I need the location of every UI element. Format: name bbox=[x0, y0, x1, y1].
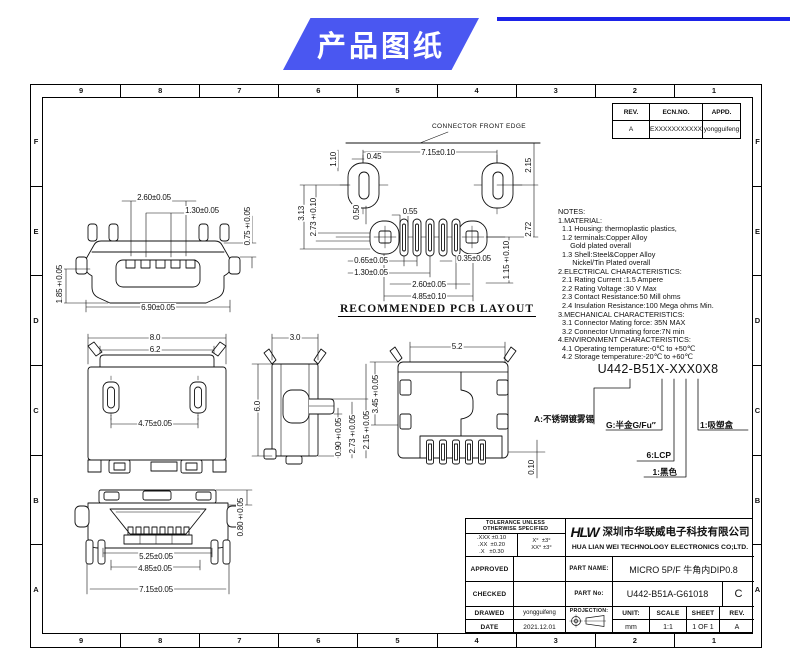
dim-label: 4.85±0.05 bbox=[137, 564, 173, 573]
dim-label: 1.30±0.05 bbox=[184, 206, 220, 215]
third-angle-projection-icon bbox=[569, 614, 609, 628]
tolerance-angular: X° ±3° XX° ±3° bbox=[518, 534, 566, 557]
dim-label: 0.10 bbox=[527, 459, 536, 476]
dim-label: 3.13 bbox=[297, 205, 306, 222]
dim-label: 4.85±0.10 bbox=[411, 292, 447, 301]
dim-label: 0.45 bbox=[366, 152, 383, 161]
company-name-cn: 深圳市华联威电子科技有限公司 bbox=[603, 524, 750, 539]
callout-shell-finish: A:不锈钢镀雾锡 bbox=[532, 413, 594, 425]
dim-label: 7.15±0.10 bbox=[420, 148, 456, 157]
dim-label: 2.15 bbox=[524, 157, 533, 174]
company-name-en: HUA LIAN WEI TECHNOLOGY ELECTRONICS CO;L… bbox=[572, 544, 748, 551]
unit-value: mm bbox=[613, 620, 650, 634]
dim-label: 2.73±0.10 bbox=[309, 197, 318, 237]
callout-color: 1:黑色 bbox=[644, 466, 677, 478]
dim-label: 0.55 bbox=[402, 207, 419, 216]
date-value: 2021.12.01 bbox=[514, 620, 566, 634]
dim-label: 3.45±0.05 bbox=[371, 374, 380, 414]
rev-value: A bbox=[720, 620, 754, 634]
dim-label: 2.73±0.05 bbox=[348, 414, 357, 454]
dim-label: 3.0 bbox=[289, 333, 302, 342]
front-view-linework bbox=[60, 201, 256, 312]
appd-header: APPD. bbox=[703, 104, 740, 121]
part-no-label: PART No: bbox=[566, 582, 613, 607]
dim-label: 6.2 bbox=[149, 345, 162, 354]
appd-value: yongguifeng bbox=[703, 121, 740, 138]
top-view-linework bbox=[88, 334, 226, 473]
dim-label: 6.0 bbox=[253, 400, 262, 413]
dim-label: 2.72 bbox=[524, 221, 533, 238]
dim-label: 0.75±0.05 bbox=[243, 206, 252, 246]
rev-value: A bbox=[613, 121, 650, 138]
checked-label: CHECKED bbox=[466, 582, 514, 607]
scale-label: SCALE bbox=[650, 607, 687, 620]
projection-cell: PROJECTION: bbox=[566, 607, 613, 634]
tolerance-linear: .XXX ±0.10 .XX ±0.20 .X ±0.30 bbox=[466, 534, 518, 557]
sheet-value: 1 OF 1 bbox=[687, 620, 720, 634]
dim-label: 0.35±0.05 bbox=[456, 254, 492, 263]
ecn-value: EXXXXXXXXXXX bbox=[650, 121, 703, 138]
dim-label: 1.15±0.10 bbox=[502, 240, 511, 280]
title-block: TOLERANCE UNLESS OTHERWISE SPECIFIED .XX… bbox=[465, 518, 753, 633]
dim-label: 0.50 bbox=[352, 204, 361, 221]
dim-label: 2.60±0.05 bbox=[136, 193, 172, 202]
dim-label: 1.30±0.05 bbox=[353, 268, 389, 277]
sheet-label: SHEET bbox=[687, 607, 720, 620]
dim-label: 1.10 bbox=[329, 151, 338, 168]
revision-table: REV. ECN.NO. APPD. A EXXXXXXXXXXX yonggu… bbox=[612, 103, 741, 139]
revision-letter: C bbox=[723, 582, 754, 607]
dim-label: 2.60±0.05 bbox=[411, 280, 447, 289]
part-name-label: PART NAME: bbox=[566, 557, 613, 582]
part-no-value: U442-B51A-G61018 bbox=[613, 582, 723, 607]
ecn-header: ECN.NO. bbox=[650, 104, 703, 121]
callout-packing: 1:吸塑盒 bbox=[700, 419, 733, 431]
dim-label: 0.65±0.05 bbox=[353, 256, 389, 265]
scale-value: 1:1 bbox=[650, 620, 687, 634]
dim-label: 4.75±0.05 bbox=[137, 419, 173, 428]
dim-label: 0.90±0.05 bbox=[334, 417, 343, 457]
dim-label: 5.2 bbox=[451, 342, 464, 351]
dim-label: 0.80±0.05 bbox=[236, 497, 245, 537]
part-number-code: U442-B51X-XXX0X8 bbox=[593, 362, 723, 376]
date-label: DATE bbox=[466, 620, 514, 634]
rev-label: REV. bbox=[720, 607, 754, 620]
pcb-layout-caption: RECOMMENDED PCB LAYOUT bbox=[338, 303, 536, 317]
notes-block: NOTES: 1.MATERIAL: 1.1 Housing: thermopl… bbox=[558, 208, 714, 362]
dim-label: 5.25±0.05 bbox=[138, 552, 174, 561]
approved-value bbox=[514, 557, 566, 582]
company-block: HLW 深圳市华联威电子科技有限公司 HUA LIAN WEI TECHNOLO… bbox=[566, 519, 754, 557]
drawed-value: yongguifeng bbox=[514, 607, 566, 620]
connector-front-edge-label: CONNECTOR FRONT EDGE bbox=[432, 123, 526, 130]
tolerance-header: TOLERANCE UNLESS OTHERWISE SPECIFIED bbox=[466, 519, 566, 534]
callout-plating: G:半金G/Fu″ bbox=[606, 419, 656, 431]
callout-material: 6:LCP bbox=[637, 450, 671, 460]
checked-value bbox=[514, 582, 566, 607]
part-name-value: MICRO 5P/F 牛角内DIP0.8 bbox=[613, 557, 754, 582]
back-view-linework bbox=[370, 342, 545, 478]
approved-label: APPROVED bbox=[466, 557, 514, 582]
bottom-view-linework bbox=[75, 490, 252, 594]
dim-label: 1.85±0.05 bbox=[55, 264, 64, 304]
unit-label: UNIT: bbox=[613, 607, 650, 620]
rev-header: REV. bbox=[613, 104, 650, 121]
dim-label: 7.15±0.05 bbox=[138, 585, 174, 594]
company-logo: HLW bbox=[570, 524, 598, 540]
dim-label: 6.90±0.05 bbox=[140, 303, 176, 312]
drawed-label: DRAWED bbox=[466, 607, 514, 620]
dim-label: 8.0 bbox=[149, 333, 162, 342]
dim-label: 2.15±0.05 bbox=[362, 410, 371, 450]
